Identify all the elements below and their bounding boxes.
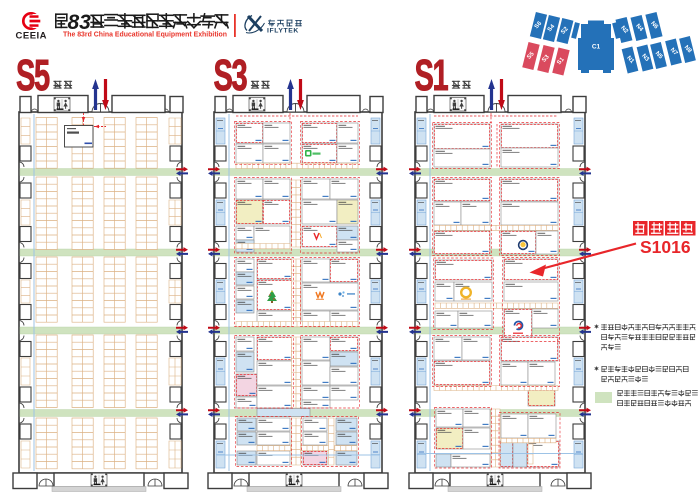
svg-text:S3: S3 [214, 50, 248, 100]
svg-text:IFLYTEK: IFLYTEK [267, 28, 299, 35]
svg-text:CEEIA: CEEIA [16, 31, 48, 42]
svg-text:S5: S5 [16, 50, 50, 100]
svg-text:The 83rd China Educational Equ: The 83rd China Educational Equipment Exh… [63, 30, 227, 39]
svg-text:S1016: S1016 [640, 237, 691, 257]
svg-text:S1: S1 [415, 50, 449, 100]
svg-text:C1: C1 [592, 44, 601, 51]
